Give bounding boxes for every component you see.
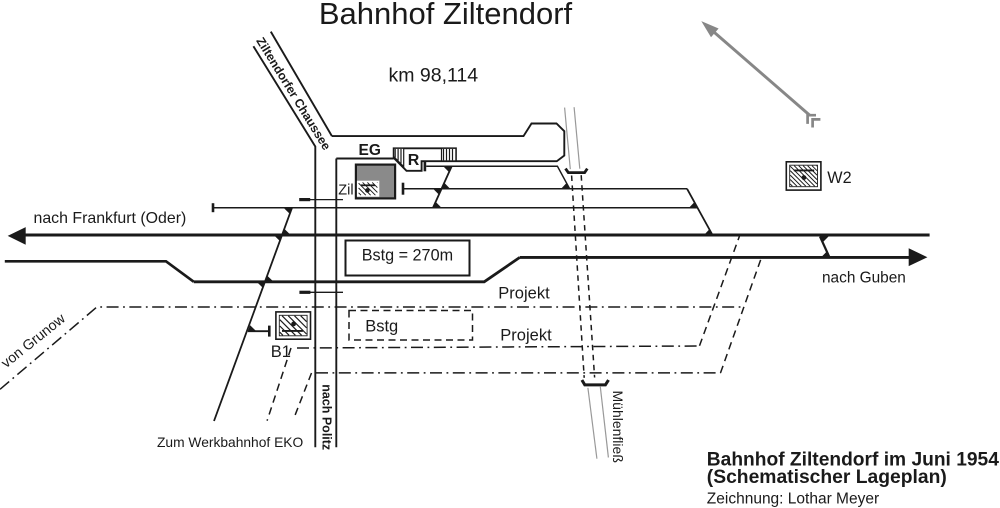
svg-text:km 98,114: km 98,114: [389, 64, 479, 86]
svg-text:Projekt: Projekt: [500, 327, 552, 345]
svg-text:Zum Werkbahnhof EKO: Zum Werkbahnhof EKO: [157, 435, 303, 450]
svg-text:W2: W2: [827, 169, 851, 187]
svg-text:EG: EG: [359, 142, 381, 159]
svg-text:Zeichnung: Lothar Meyer: Zeichnung: Lothar Meyer: [707, 491, 879, 508]
svg-text:Bstg: Bstg: [365, 317, 398, 335]
svg-text:(Schematischer Lageplan): (Schematischer Lageplan): [707, 467, 947, 488]
svg-text:Bstg = 270m: Bstg = 270m: [362, 247, 453, 265]
svg-text:nach Guben: nach Guben: [822, 270, 906, 287]
svg-text:Zil: Zil: [338, 182, 353, 198]
svg-text:Projekt: Projekt: [498, 285, 550, 303]
svg-text:B1: B1: [271, 343, 291, 361]
svg-text:nach Frankfurt (Oder): nach Frankfurt (Oder): [34, 210, 187, 227]
svg-text:Mühlenfließ: Mühlenfließ: [610, 391, 626, 463]
svg-text:nach Politz: nach Politz: [319, 384, 333, 450]
svg-text:Bahnhof Ziltendorf: Bahnhof Ziltendorf: [319, 0, 573, 31]
svg-text:R: R: [408, 152, 420, 169]
